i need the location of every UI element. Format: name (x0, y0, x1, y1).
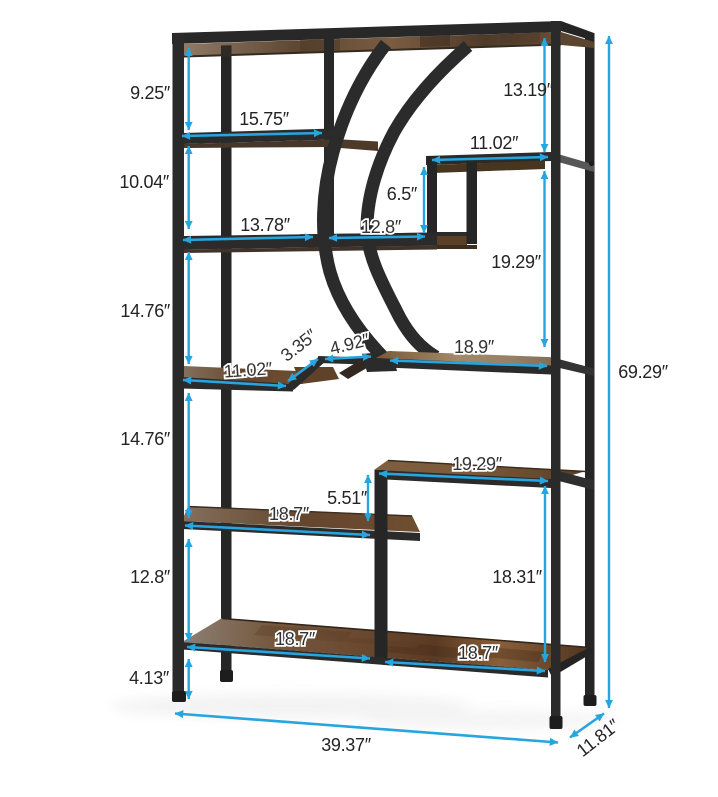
svg-text:10.04″: 10.04″ (119, 172, 170, 192)
svg-text:14.76″: 14.76″ (120, 301, 171, 321)
svg-text:19.29″: 19.29″ (491, 252, 542, 272)
svg-text:18.9″: 18.9″ (454, 337, 495, 357)
svg-text:12.8″: 12.8″ (130, 567, 171, 587)
svg-text:69.29″: 69.29″ (618, 362, 669, 382)
svg-text:6.5″: 6.5″ (387, 184, 418, 204)
svg-text:11.02″: 11.02″ (223, 358, 273, 381)
svg-text:12.8″: 12.8″ (361, 217, 402, 237)
svg-text:18.7″: 18.7″ (275, 629, 316, 649)
svg-text:18.7″: 18.7″ (458, 643, 499, 663)
svg-text:18.7″: 18.7″ (269, 504, 310, 524)
svg-text:13.78″: 13.78″ (240, 215, 291, 235)
svg-text:11.02″: 11.02″ (470, 133, 519, 153)
svg-text:13.19″: 13.19″ (503, 80, 554, 100)
svg-text:15.75″: 15.75″ (239, 109, 290, 129)
svg-text:4.13″: 4.13″ (129, 668, 170, 688)
svg-text:14.76″: 14.76″ (120, 429, 171, 449)
svg-text:9.25″: 9.25″ (130, 83, 171, 103)
svg-text:5.51″: 5.51″ (327, 488, 368, 508)
svg-text:39.37″: 39.37″ (321, 735, 372, 755)
svg-text:19.29″: 19.29″ (452, 454, 503, 474)
svg-text:18.31″: 18.31″ (492, 567, 543, 587)
